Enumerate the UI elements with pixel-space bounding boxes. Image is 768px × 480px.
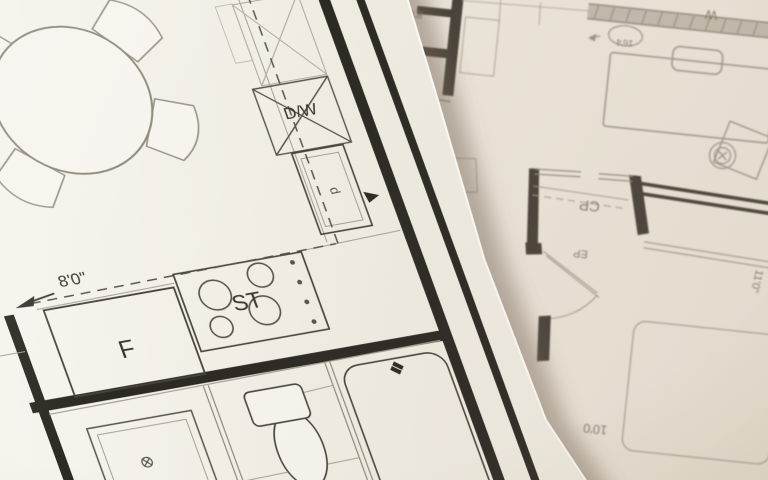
bottom-dimension-label: 10'0 <box>582 421 608 438</box>
window-label: W <box>704 7 718 23</box>
closet-small-label: EP <box>573 247 589 260</box>
closet-label: CP <box>578 196 601 215</box>
floorplan-photo: W 8'0 16'4 <box>0 0 768 480</box>
circled-dimension-label: 16'4 <box>616 37 634 49</box>
floorplan-drawing: W 8'0 16'4 <box>0 0 768 480</box>
